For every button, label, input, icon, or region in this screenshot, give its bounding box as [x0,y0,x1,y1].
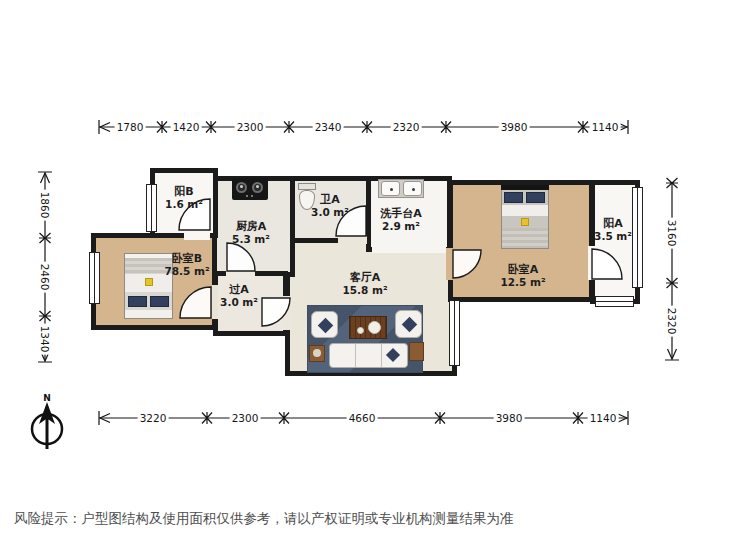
room-name: 卧室A [478,263,568,276]
label-bedroom-a: 卧室A 12.5 m² [478,263,568,289]
compass-north-text: N [43,393,51,403]
dim-left-2: 2460 [39,262,51,293]
dim-right-1: 3160 [666,218,678,249]
label-washstand: 洗手台A 2.9 m² [356,207,446,233]
room-name: 厨房A [206,220,296,233]
opening-balcony-a [588,246,596,280]
dim-bottom-3: 4660 [347,412,378,424]
room-name: 过A [194,283,284,296]
room-area: 5.3 m² [206,233,296,246]
room-area: 2.9 m² [356,220,446,233]
floorplan-canvas: 阳B 1.6 m² 厨房A 5.3 m² 卫A 3.0 m² 洗手台A 2.9 … [0,0,729,547]
opening-hall-living [283,296,291,330]
sofa-icon [329,343,408,368]
room-name: 卧室B [142,252,232,265]
dim-bottom-4: 3980 [494,412,525,424]
room-name: 客厅A [320,271,410,284]
dim-top-1: 1780 [115,121,146,133]
side-table-right [409,342,424,361]
dim-bottom-5: 1140 [588,412,619,424]
dim-left-3: 1340 [39,324,51,355]
window-balcony-a-south [595,296,634,307]
room-name: 阳B [139,185,229,198]
dim-top-3: 2300 [235,121,266,133]
label-bedroom-b: 卧室B 78.5 m² [142,252,232,278]
label-balcony-a: 阳A 3.5 m² [568,217,658,243]
opening-bedroom-a [446,248,454,280]
dim-top-7: 1140 [590,121,621,133]
room-area: 15.8 m² [320,284,410,297]
dim-top-6: 3980 [499,121,530,133]
opening-bath [338,236,367,244]
compass-icon: N [32,393,62,449]
room-area: 3.0 m² [194,296,284,309]
window-living [449,300,460,366]
label-kitchen: 厨房A 5.3 m² [206,220,296,246]
dim-top-4: 2340 [313,121,344,133]
dim-top-5: 2320 [391,121,422,133]
dim-bottom-1: 3220 [138,412,169,424]
dim-bottom-2: 2300 [230,412,261,424]
label-balcony-b: 阳B 1.6 m² [139,185,229,211]
bed-icon-bedroom-a [501,185,549,249]
dim-top-2: 1420 [171,121,202,133]
risk-disclaimer-text: 风险提示：户型图结构及使用面积仅供参考，请以产权证明或专业机构测量结果为准 [14,510,514,528]
label-living: 客厅A 15.8 m² [320,271,410,297]
room-name: 卫A [285,193,375,206]
side-table-left [309,345,325,362]
label-hallway: 过A 3.0 m² [194,283,284,309]
sink-icon [378,179,424,198]
dim-right-2: 2320 [666,306,678,337]
room-name: 洗手台A [356,207,446,220]
room-area: 3.5 m² [568,230,658,243]
armchair-right [395,310,422,338]
room-area: 1.6 m² [139,198,229,211]
coffee-table [349,316,387,339]
window-bedroom-b [89,252,100,304]
stove-icon [232,178,268,200]
room-area: 78.5 m² [142,265,232,278]
opening-washstand-living [372,246,446,253]
room-area: 12.5 m² [478,276,568,289]
room-name: 阳A [568,217,658,230]
armchair-left [311,311,338,338]
dim-left-1: 1860 [39,190,51,221]
